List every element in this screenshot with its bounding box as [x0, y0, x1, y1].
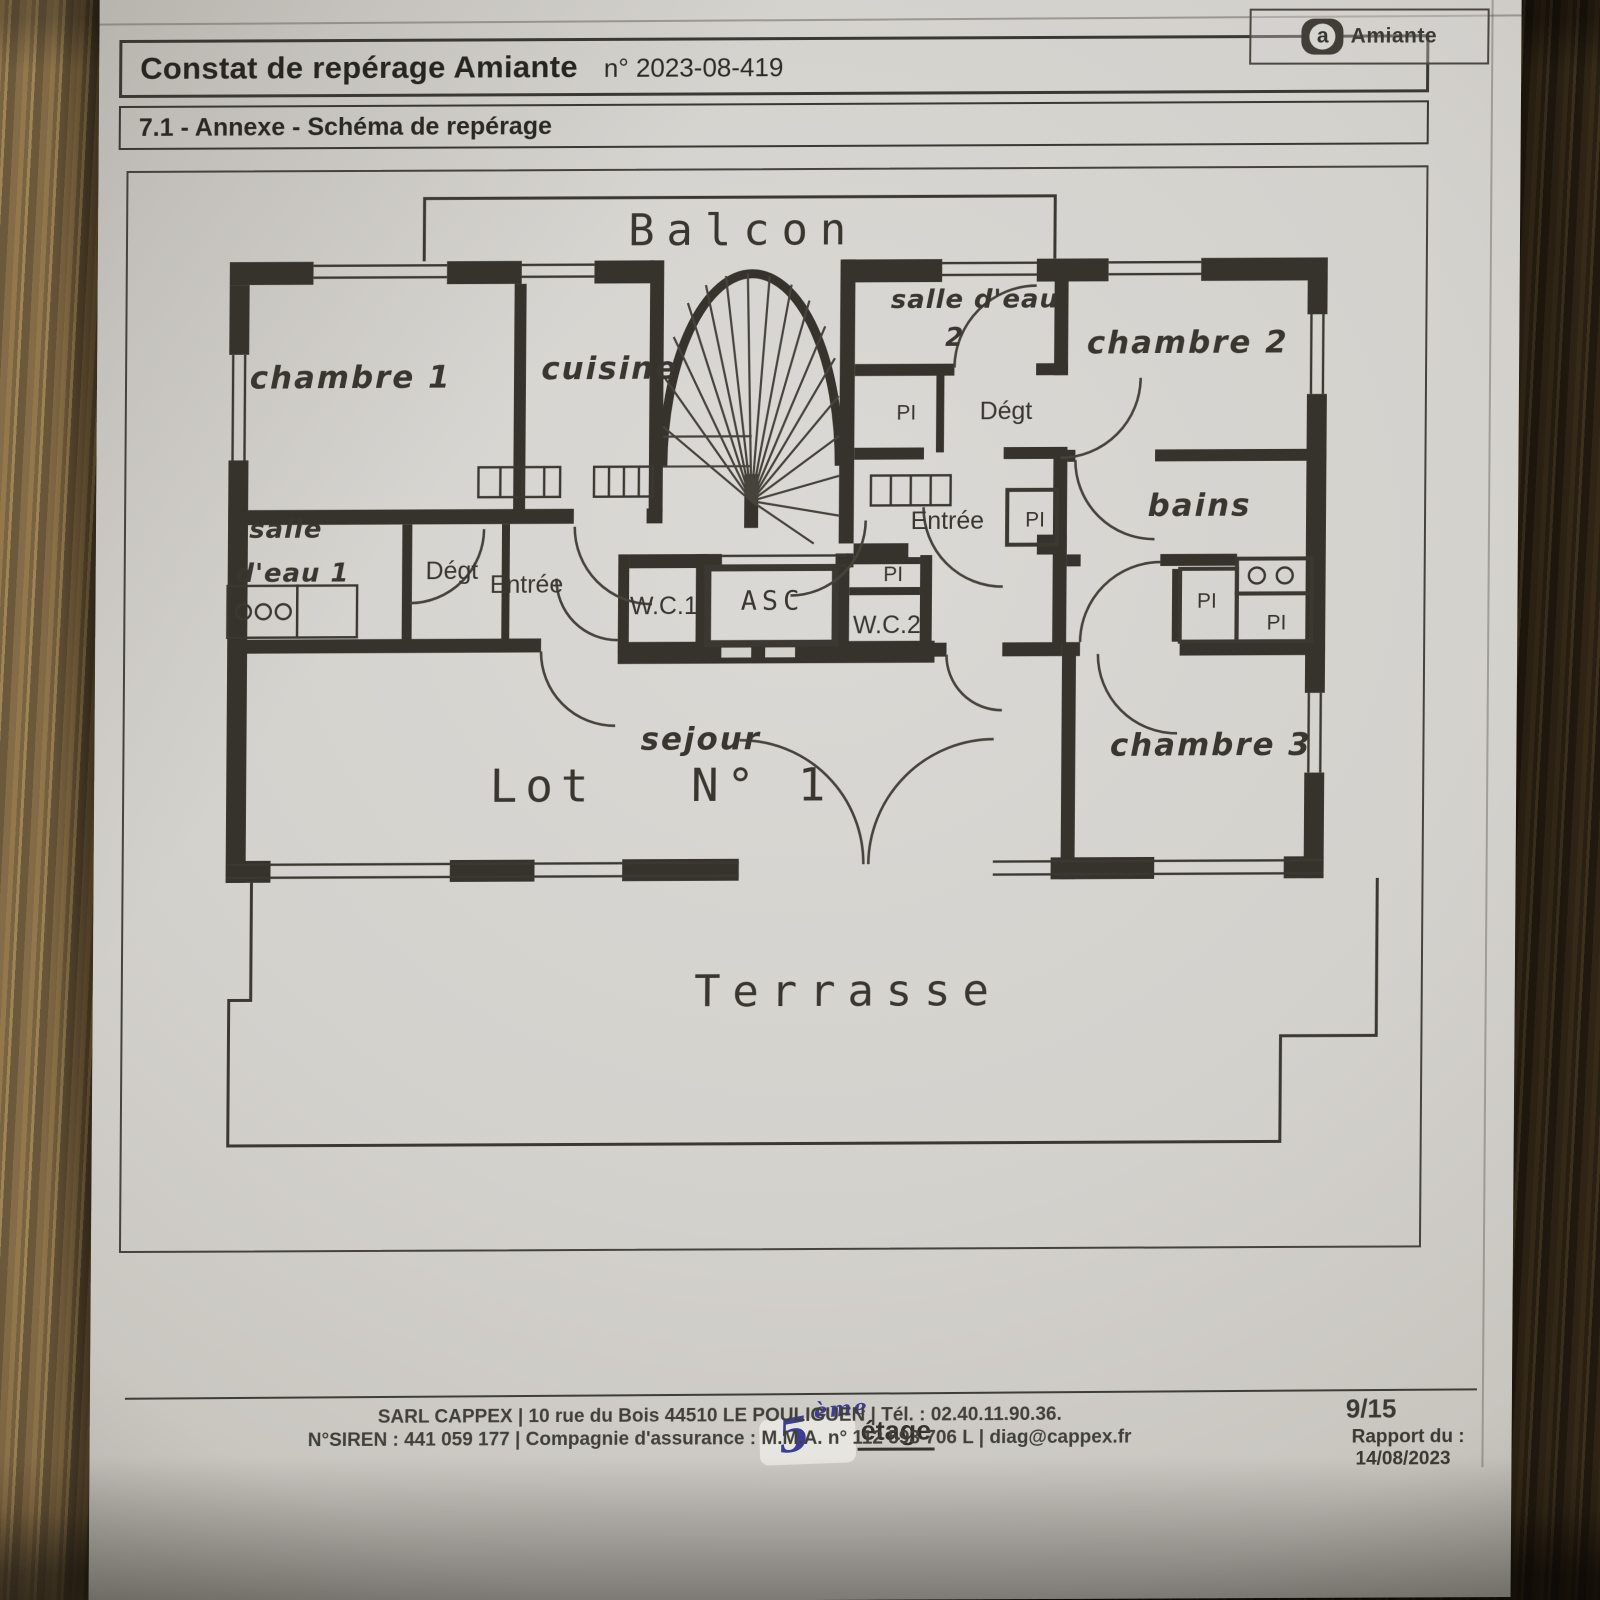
page-number: 9/15 [1346, 1393, 1496, 1425]
logo-brand-text: Amiante [1351, 25, 1438, 49]
room-label-salle: salle [249, 515, 322, 545]
room-label-sejour: sejour [641, 721, 762, 758]
lot-number: N° 1 [691, 758, 834, 813]
closet-label-pi-2: PI [1025, 509, 1045, 532]
room-label-cuisine: cuisine [541, 351, 678, 388]
room-label-entree-right: Entrée [911, 507, 985, 535]
room-label-chambre-3: chambre 3 [1110, 727, 1312, 764]
report-date-label: Rapport du : [1352, 1426, 1496, 1449]
sheet-right-crease [1481, 0, 1494, 1467]
floor-plan-svg: Balcon chambre 1 cuisine salle d'eau 2 c… [121, 167, 1427, 1251]
report-header: Constat de repérage Amiante n° 2023-08-4… [119, 34, 1429, 98]
logo-a-icon: a [1302, 19, 1344, 55]
footer-page-block: 9/15 Rapport du : 14/08/2023 [1345, 1393, 1496, 1471]
room-label-degt-right: Dégt [980, 397, 1033, 425]
room-label-chambre-1: chambre 1 [250, 360, 452, 397]
document-page: Constat de repérage Amiante n° 2023-08-4… [89, 0, 1522, 1600]
closet-label-pi-3: PI [883, 563, 903, 586]
room-label-entree-left: Entrée [490, 571, 564, 599]
footer-info: SARL CAPPEX | 10 rue du Bois 44510 LE PO… [230, 1402, 1210, 1452]
closet-label-pi-4: PI [1197, 590, 1217, 613]
closet-label-pi-1: PI [896, 402, 916, 425]
room-label-salle-eau-2: salle d'eau [891, 284, 1059, 315]
room-label-wc1: W.C.1 [630, 592, 698, 620]
room-label-asc: ASC [741, 585, 805, 616]
footer-line-2: N°SIREN : 441 059 177 | Compagnie d'assu… [230, 1425, 1210, 1452]
room-label-degt-left: Dégt [426, 557, 479, 585]
closet-label-pi-5: PI [1266, 611, 1286, 634]
room-label-chambre-2: chambre 2 [1087, 324, 1289, 361]
room-label-balcon: Balcon [628, 205, 858, 257]
room-label-wc2: W.C.2 [853, 611, 921, 639]
room-label-salle-eau-2-number: 2 [945, 323, 964, 353]
report-number: n° 2023-08-419 [604, 52, 784, 84]
door-slot [721, 647, 751, 657]
plan-frame: Balcon chambre 1 cuisine salle d'eau 2 c… [119, 165, 1429, 1253]
room-label-bains: bains [1148, 488, 1252, 524]
footer-rule [125, 1388, 1477, 1399]
section-header: 7.1 - Annexe - Schéma de repérage [119, 100, 1429, 150]
report-date: 14/08/2023 [1355, 1448, 1495, 1471]
door-slot [765, 647, 795, 657]
page-title: Constat de repérage Amiante [140, 49, 578, 87]
amiante-logo: a Amiante [1249, 8, 1490, 64]
room-label-d-eau-1: d'eau 1 [235, 559, 349, 589]
section-title: 7.1 - Annexe - Schéma de repérage [139, 112, 552, 143]
lot-label: Lot [490, 759, 597, 813]
room-label-terrasse: Terrasse [694, 965, 1001, 1017]
